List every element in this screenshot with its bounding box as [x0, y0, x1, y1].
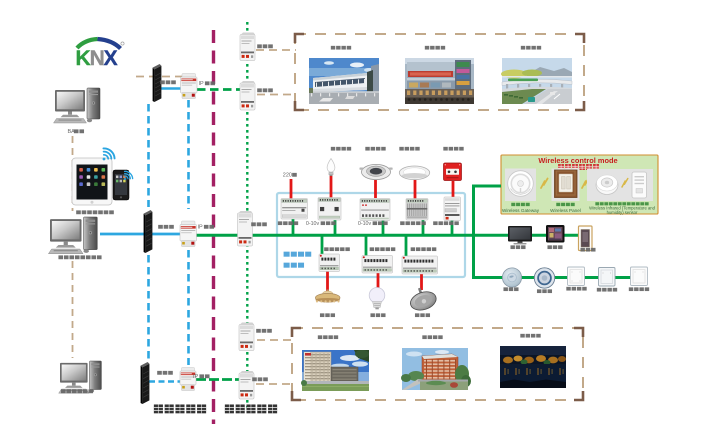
svg-text:humidity) sensor: humidity) sensor: [607, 210, 638, 215]
svg-text:0-10v: 0-10v: [358, 221, 372, 227]
svg-text:Wireless Gateway: Wireless Gateway: [502, 208, 540, 213]
svg-text:220: 220: [283, 173, 292, 179]
svg-text:Wireless Panel: Wireless Panel: [550, 208, 581, 213]
svg-text:KNX: KNX: [76, 47, 118, 70]
svg-text:IP: IP: [198, 225, 204, 231]
svg-text:IP: IP: [199, 81, 205, 87]
svg-text:IP: IP: [193, 374, 199, 380]
svg-text:0-10v: 0-10v: [306, 221, 320, 227]
svg-text:Wireless control mode: Wireless control mode: [538, 156, 617, 165]
